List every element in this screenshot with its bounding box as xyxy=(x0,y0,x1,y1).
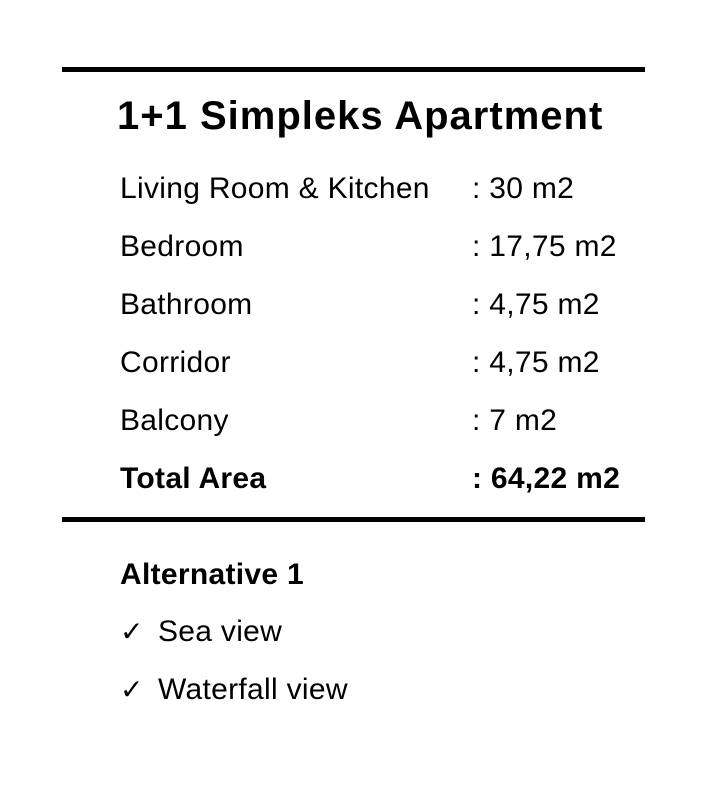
table-row: Balcony : 7 m2 xyxy=(120,392,724,450)
alternative-heading: Alternative 1 xyxy=(120,555,724,595)
room-label: Living Room & Kitchen xyxy=(120,160,472,218)
room-area-value: : 4,75 m2 xyxy=(472,276,600,334)
bottom-divider xyxy=(62,517,645,522)
room-area-table: Living Room & Kitchen : 30 m2 Bedroom : … xyxy=(120,160,724,508)
list-item: ✓ Waterfall view xyxy=(120,661,724,719)
apartment-spec-sheet: 1+1 Simpleks Apartment Living Room & Kit… xyxy=(0,0,724,786)
feature-list: ✓ Sea view ✓ Waterfall view xyxy=(120,603,724,719)
feature-label: Waterfall view xyxy=(158,661,348,719)
room-label: Bedroom xyxy=(120,218,472,276)
room-area-value: : 30 m2 xyxy=(472,160,574,218)
feature-label: Sea view xyxy=(158,603,282,661)
page-title: 1+1 Simpleks Apartment xyxy=(117,92,724,140)
top-divider xyxy=(62,67,645,72)
table-row: Living Room & Kitchen : 30 m2 xyxy=(120,160,724,218)
room-label: Bathroom xyxy=(120,276,472,334)
room-label: Corridor xyxy=(120,334,472,392)
list-item: ✓ Sea view xyxy=(120,603,724,661)
table-row: Bedroom : 17,75 m2 xyxy=(120,218,724,276)
room-area-value: : 4,75 m2 xyxy=(472,334,600,392)
table-row: Bathroom : 4,75 m2 xyxy=(120,276,724,334)
total-area-value: : 64,22 m2 xyxy=(472,450,620,508)
total-area-label: Total Area xyxy=(120,450,472,508)
room-label: Balcony xyxy=(120,392,472,450)
room-area-value: : 7 m2 xyxy=(472,392,557,450)
room-area-value: : 17,75 m2 xyxy=(472,218,617,276)
check-icon: ✓ xyxy=(120,603,158,661)
table-row-total: Total Area : 64,22 m2 xyxy=(120,450,724,508)
table-row: Corridor : 4,75 m2 xyxy=(120,334,724,392)
check-icon: ✓ xyxy=(120,661,158,719)
